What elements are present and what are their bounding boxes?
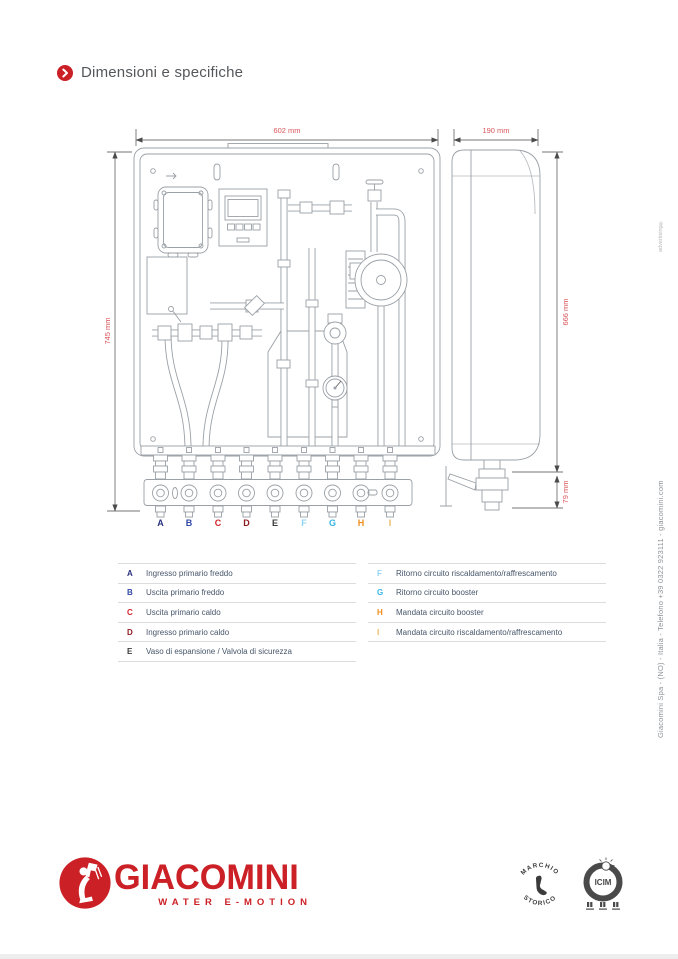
dim-front-height-label: 745 mm [103,317,112,344]
legend-letter: H [377,608,396,617]
dim-front-width-label: 602 mm [273,126,300,135]
connection-letter: B [186,518,193,528]
page-edge [0,954,678,959]
junction-box [154,187,212,257]
certification-badges: MARCHIO STORICO ICIM [506,847,636,923]
legend-letter: E [127,647,146,656]
legend-text: Mandata circuito booster [396,608,484,617]
svg-text:MARCHIO: MARCHIO [520,862,561,877]
legend-row: G Ritorno circuito booster [368,583,606,603]
giacomini-logo-mark-icon [57,855,113,911]
legend-letter: B [127,588,146,597]
connection-letter: I [389,518,392,528]
legend-table-left: A Ingresso primario freddo B Uscita prim… [118,563,356,662]
legend-text: Ingresso primario caldo [146,628,229,637]
legend-letter: D [127,628,146,637]
legend-letter: F [377,569,396,578]
connection-letter: E [272,518,278,528]
technical-drawing: 602 mm 190 mm 745 mm 666 mm 79 mm A B C … [80,112,600,532]
connection-letter: A [157,518,164,528]
svg-text:ICIM: ICIM [595,878,612,887]
connection-letter: H [358,518,365,528]
connection-letter: D [243,518,250,528]
company-address-vertical-text: Giacomini Spa - (NO) - Italia - Telefono… [656,442,665,738]
front-view [134,144,440,518]
legend-text: Ingresso primario freddo [146,569,233,578]
svg-text:STORICO: STORICO [522,894,558,907]
datasheet-page: Dimensioni e specifiche [0,0,678,959]
legend-row: A Ingresso primario freddo [118,563,356,583]
legend-text: Uscita primario caldo [146,608,221,617]
watermark-vertical-text: advertising® [658,198,664,252]
connection-letters: A B C D E F G H I [157,518,391,528]
legend-text: Ritorno circuito riscaldamento/raffresca… [396,569,557,578]
legend-letter: I [377,628,396,637]
legend-text: Mandata circuito riscaldamento/raffresca… [396,628,562,637]
legend-row: I Mandata circuito riscaldamento/raffres… [368,622,606,642]
legend-row: B Uscita primario freddo [118,583,356,603]
legend-text: Vaso di espansione / Valvola di sicurezz… [146,647,292,656]
connection-letter: G [329,518,336,528]
legend-row: C Uscita primario caldo [118,602,356,622]
legend-letter: A [127,569,146,578]
marchio-storico-badge: MARCHIO STORICO [520,862,561,907]
legend-row: H Mandata circuito booster [368,602,606,622]
section-header: Dimensioni e specifiche [57,64,243,81]
fill-valve [366,180,383,201]
legend-letter: G [377,588,396,597]
legend-row: D Ingresso primario caldo [118,622,356,642]
italy-silhouette-icon [536,876,547,895]
legend-row: F Ritorno circuito riscaldamento/raffres… [368,563,606,583]
brand-wordmark: GIACOMINI [114,858,299,898]
certification-marks [586,902,620,910]
legend-text: Ritorno circuito booster [396,588,478,597]
side-view [440,150,540,510]
bottom-fitting [440,460,508,510]
icim-badge: ICIM [586,858,620,910]
brand-tagline: WATER E-MOTION [114,897,312,908]
connection-letter: C [215,518,222,528]
legend-table-right: F Ritorno circuito riscaldamento/raffres… [368,563,606,642]
controller-unit [219,189,267,246]
legend-row: E Vaso di espansione / Valvola di sicure… [118,641,356,661]
dim-side-height-label: 666 mm [561,298,570,325]
legend-text: Uscita primario freddo [146,588,224,597]
legend-letter: C [127,608,146,617]
dim-connection-height-label: 79 mm [561,481,570,504]
dim-side-depth-label: 190 mm [482,126,509,135]
page-title: Dimensioni e specifiche [81,64,243,81]
connection-letter: F [301,518,307,528]
chevron-right-circle-icon [57,65,73,81]
